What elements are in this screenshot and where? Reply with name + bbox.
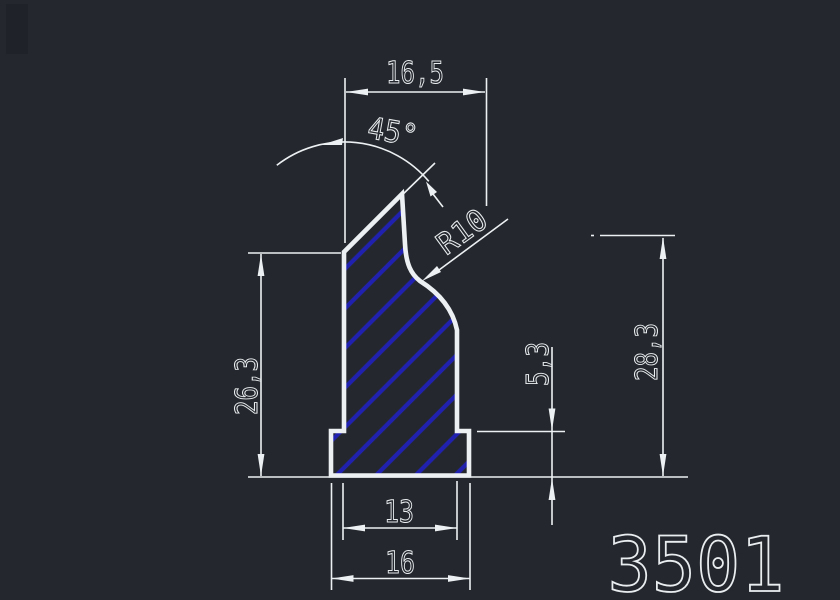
dim-top-width-label: 16,5	[386, 56, 444, 91]
dim-inner-width-label: 13	[384, 495, 414, 530]
dim-body-height-label: 26,3	[230, 357, 265, 415]
cad-viewport[interactable]: 16,5 45° R10 26,3 5,3 28,3	[0, 0, 840, 600]
dim-flange-height-label: 5,3	[521, 342, 556, 386]
part-number-label: 3501	[608, 520, 785, 600]
cad-canvas[interactable]: 16,5 45° R10 26,3 5,3 28,3	[0, 0, 840, 600]
dim-outer-width-label: 16	[385, 546, 415, 581]
dim-overall-height-label: 28,3	[630, 323, 665, 381]
corner-shadow	[6, 4, 28, 54]
